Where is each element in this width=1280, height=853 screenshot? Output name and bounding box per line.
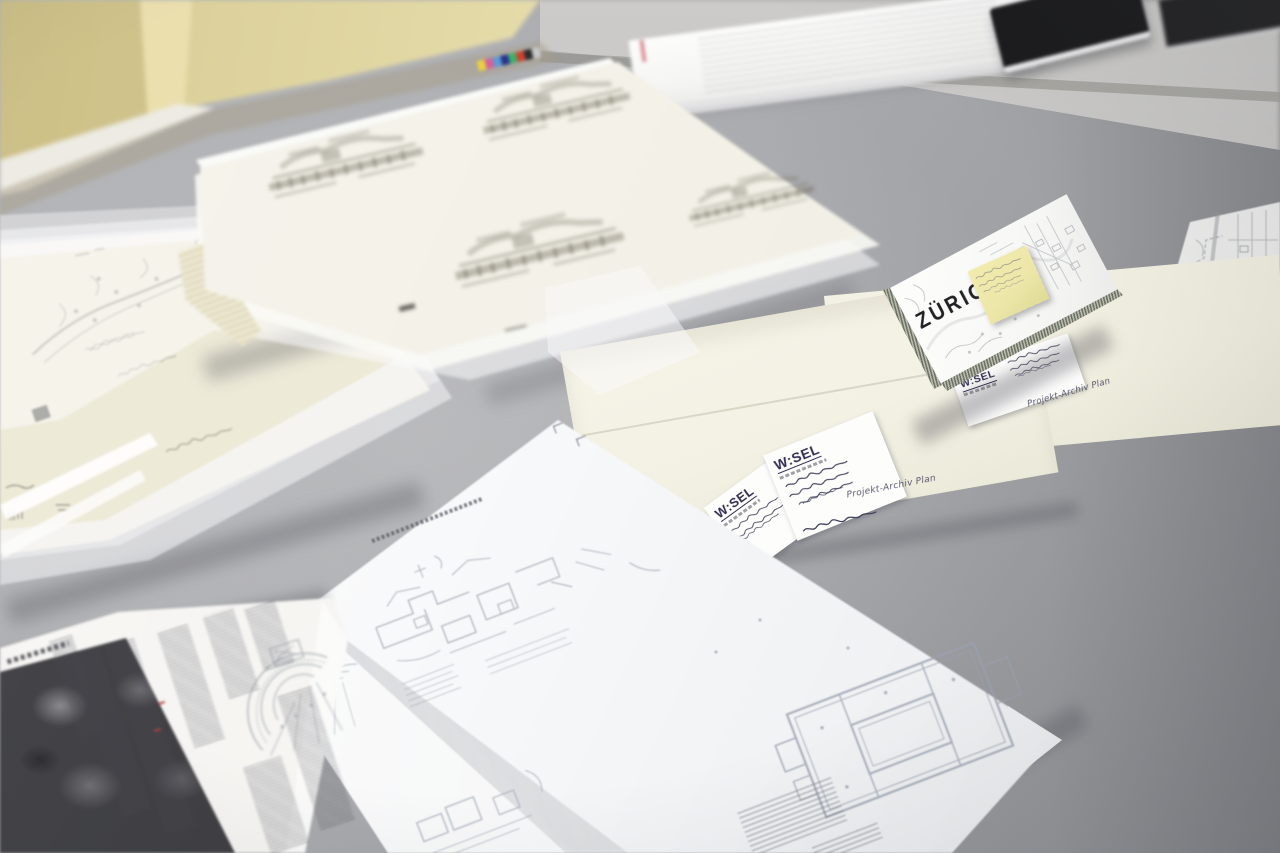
paper-pad (628, 0, 1037, 121)
paper-pad-group (0, 0, 1280, 853)
zurich-title: ZÜRICH (912, 269, 1007, 336)
calibration-swatch (516, 51, 526, 63)
tracing-top-sheet (0, 0, 1280, 853)
label-subline (779, 458, 826, 480)
tracing-stack (0, 0, 1280, 853)
background-wall-group (0, 0, 1280, 853)
photo-scene: W:SEL W:SEL Projekt-Archiv Plan W:SEL (0, 0, 1280, 853)
plan-legend-lines (737, 776, 848, 853)
table-surface (0, 0, 1280, 853)
map-fragment (0, 0, 1280, 853)
plan-fold-flap (0, 0, 1280, 853)
tracing-under-sheet (0, 0, 1280, 853)
plan-corner-shadow (981, 704, 1089, 782)
article-column (71, 646, 150, 816)
tracing-glassine-wrap (0, 0, 1280, 853)
zurich-map-pattern (890, 194, 1117, 383)
article-caption-dashes (7, 641, 70, 664)
black-binder (1159, 0, 1280, 50)
calibration-swatch (531, 47, 541, 59)
envelope-note-front: Projekt-Archiv Plan (846, 473, 937, 500)
tracing-backing-sheet (0, 0, 1280, 853)
article-red-mark (158, 701, 165, 705)
left-map-stack (0, 0, 1280, 853)
article-column (243, 756, 309, 853)
brand-text: W:SEL (713, 484, 758, 522)
label-subline (723, 499, 760, 527)
envelope-right-edge-line (827, 274, 1277, 317)
wesel-label-right: W:SEL (950, 333, 1085, 426)
plan-header-dashes (371, 497, 483, 543)
stack-backing-sheet (0, 0, 1280, 853)
pink-sheet-edge (639, 40, 646, 62)
calibration-swatch (523, 49, 533, 61)
black-notebook (989, 0, 1151, 73)
brand-text: W:SEL (959, 369, 997, 393)
far-table-edge (0, 0, 1280, 853)
wesel-label-back: W:SEL (704, 451, 829, 572)
window-sill (0, 0, 1280, 853)
old-map-sheet (0, 0, 1280, 853)
label-subline (963, 382, 998, 397)
article-column (157, 624, 225, 748)
plan-drawings (0, 0, 1280, 853)
fragment-sheet (0, 0, 1280, 853)
bright-backdrop (0, 0, 1280, 853)
envelope-front-shadow (582, 501, 1078, 595)
wall-pillar (0, 0, 1280, 853)
article-column (105, 638, 194, 834)
sticky-note (967, 246, 1049, 325)
article-column (277, 686, 355, 830)
sheet-edge-strip-2 (0, 0, 1280, 853)
site-plan-sheet-group (0, 0, 1280, 853)
wall (0, 0, 1280, 853)
plan-fold-shadow (0, 0, 1280, 853)
glassine-base (0, 0, 1280, 853)
map-fragment-shadow (1160, 322, 1271, 349)
calibration-swatch (500, 54, 510, 66)
glassine-flap (0, 0, 1280, 853)
booklet-edge-bottom (0, 0, 1280, 853)
handwriting-scribble (782, 445, 890, 520)
calibration-swatch (484, 58, 494, 70)
vignette (0, 0, 1280, 853)
glassine-second (0, 0, 1280, 853)
envelope-right (824, 255, 1280, 466)
fragment-map-pattern (0, 0, 1280, 853)
sheet-edge-strip-1 (0, 0, 1280, 853)
plan-corner-mark-1 (553, 422, 565, 433)
left-stack-shadow (5, 481, 426, 625)
wall-left-shade (0, 0, 1280, 853)
halftone-photo (0, 0, 1280, 853)
calibration-swatch (508, 52, 518, 64)
tracing-stack-shadow-1 (202, 280, 478, 382)
fragment-fold (0, 0, 1280, 853)
plan-corner-mark-2 (576, 435, 588, 446)
tracing-stack-shadow-2 (484, 280, 855, 406)
wesel-label-front: W:SEL (763, 411, 907, 541)
envelope-front (560, 270, 1058, 554)
handwriting-scribble (1005, 338, 1079, 397)
old-map-drawing (0, 0, 1280, 853)
article-red-mark (154, 728, 161, 732)
glassine-overlay (0, 0, 1280, 853)
article-column (49, 635, 103, 738)
article-circular-plan (215, 611, 370, 774)
zurich-shadow (911, 325, 1114, 446)
article-shadow (2, 589, 329, 668)
tracing-stack-edge (0, 0, 1280, 853)
plan-under-sheet-corner (0, 0, 1280, 853)
envelope-note-right: Projekt-Archiv Plan (1026, 376, 1111, 409)
zurich-booklet: ZÜRICH (890, 194, 1117, 383)
paper-pad-pages-edge (635, 58, 1028, 116)
elevation-sketches (0, 0, 1280, 853)
calibration-swatch (492, 56, 502, 68)
handwriting-scribble (727, 482, 812, 557)
wall-table-meet-band (0, 0, 1280, 853)
color-calibration-bar (477, 47, 542, 71)
page-curl-highlight (0, 0, 1280, 853)
envelope-front-crease (562, 357, 1021, 439)
calibration-swatch (477, 60, 487, 72)
sticky-note-scribble (973, 251, 1048, 321)
article-page (0, 0, 1280, 853)
plan-legend-lines-2 (811, 821, 883, 853)
paper-pad-content-rows (697, 0, 1002, 93)
site-plan-sheet (0, 0, 1280, 853)
booklet-edge-left (0, 0, 1280, 853)
table-right-shade (0, 0, 1280, 853)
article-page-group (0, 0, 1280, 853)
envelope-scribble-extra (799, 499, 911, 545)
article-column (202, 607, 259, 699)
paper-pad-shadow (630, 37, 1041, 117)
article-column (244, 599, 295, 672)
brand-text: W:SEL (772, 442, 822, 475)
